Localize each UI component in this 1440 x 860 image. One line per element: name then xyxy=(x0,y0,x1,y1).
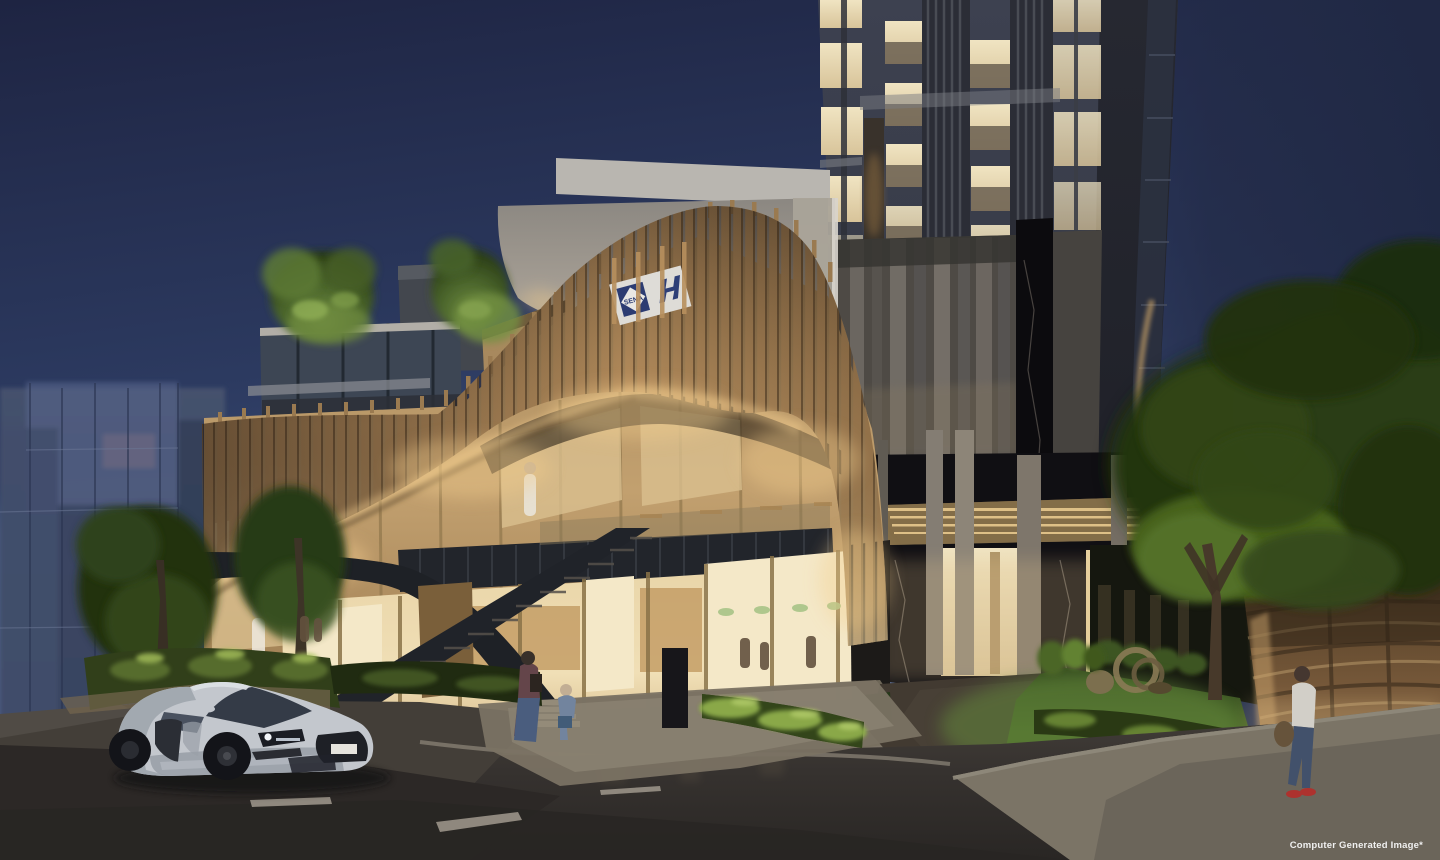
svg-text:Computer Generated Image*: Computer Generated Image* xyxy=(1290,840,1423,851)
